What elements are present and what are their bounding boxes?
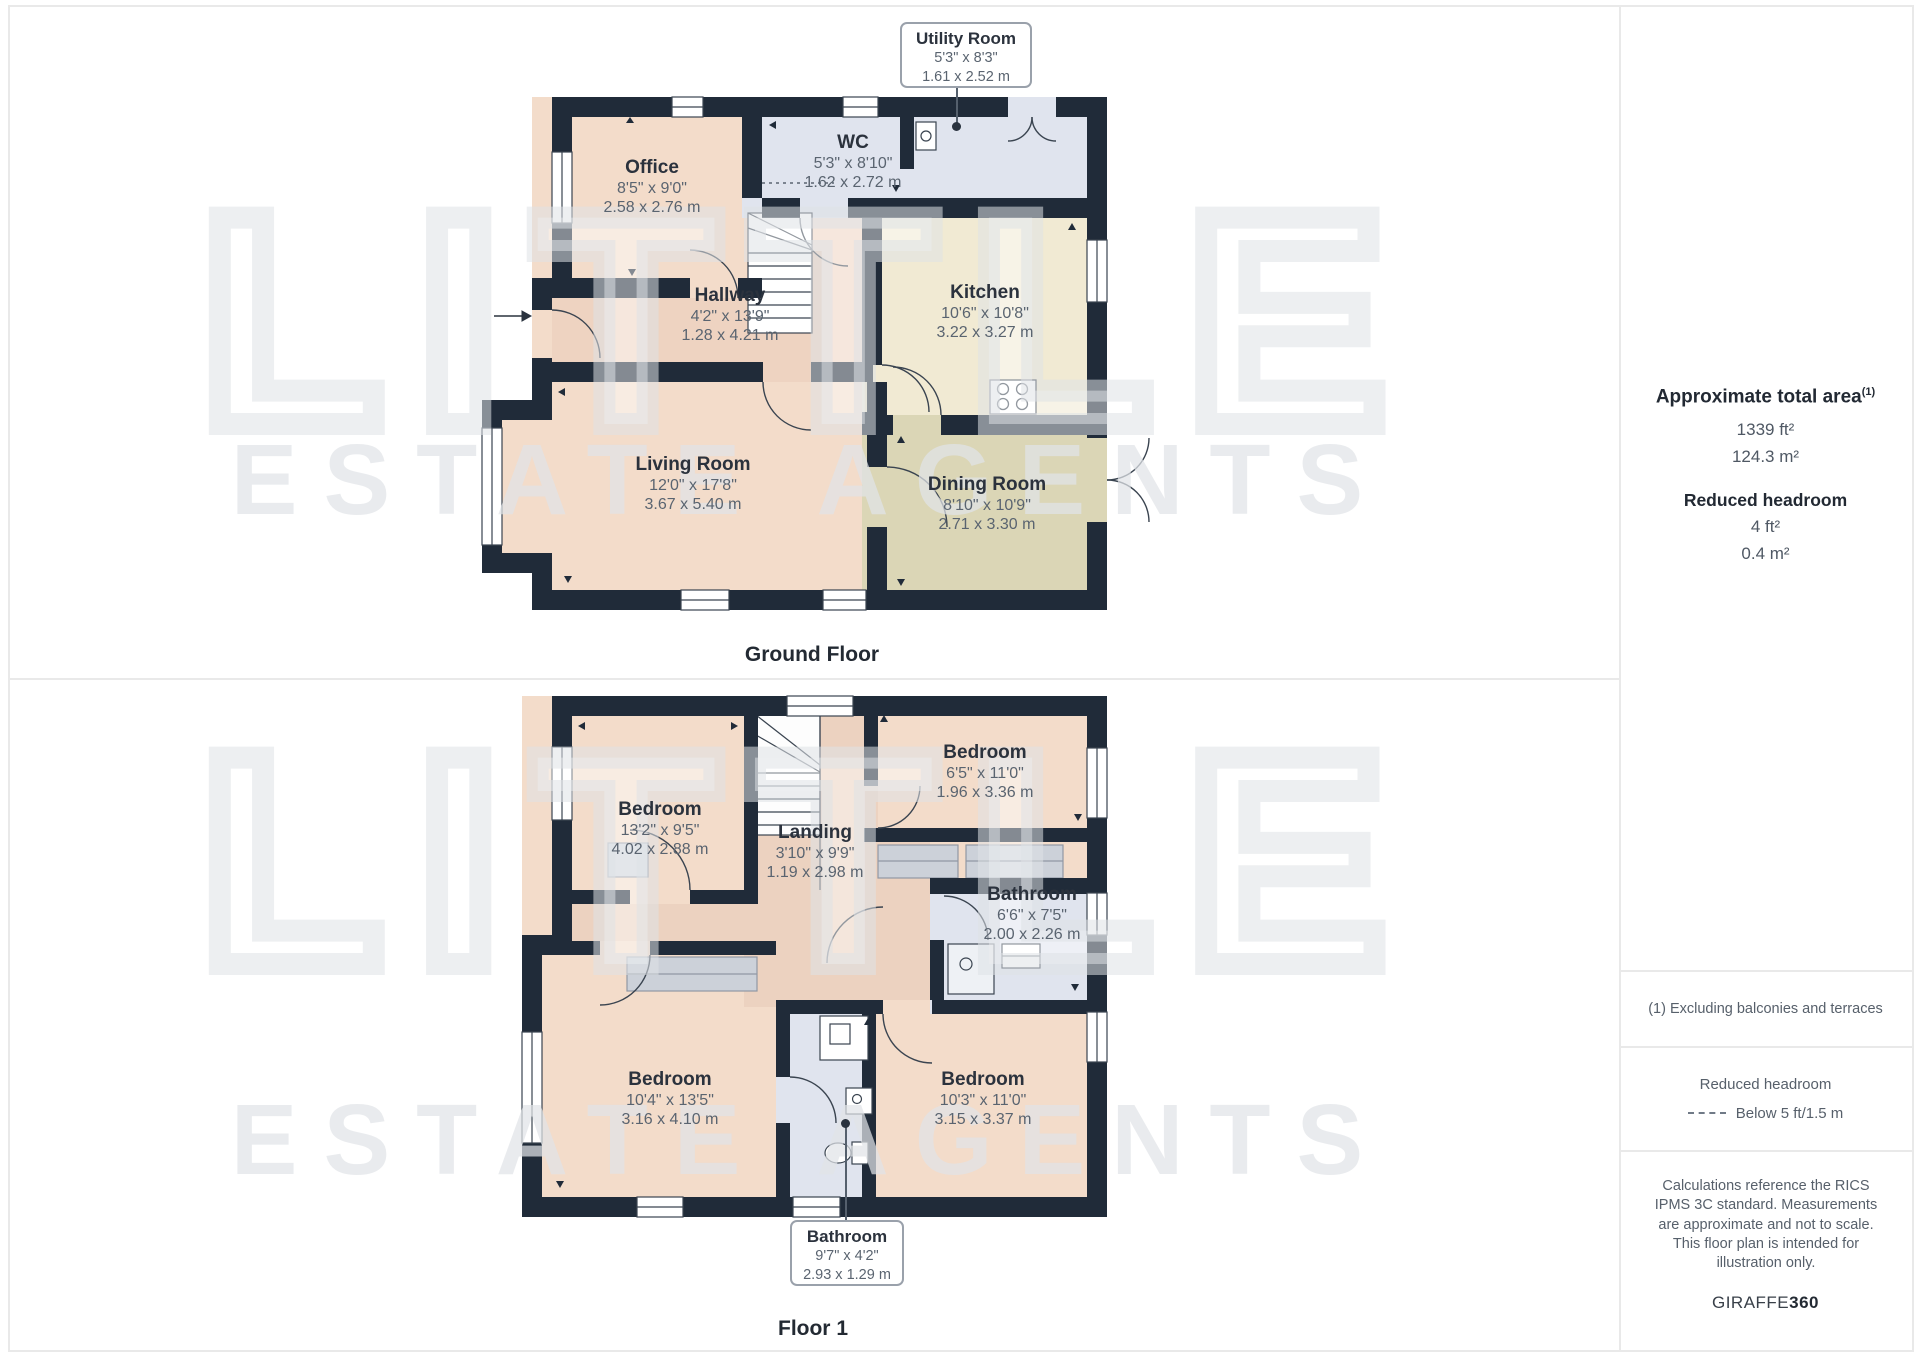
room-label-living-room: Living Room 12'0" x 17'8" 3.67 x 5.40 m xyxy=(635,454,750,514)
room-label-landing: Landing 3'10" x 9'9" 1.19 x 2.98 m xyxy=(767,822,864,882)
total-area-heading: Approximate total area(1) xyxy=(1619,386,1912,408)
legend-heading: Reduced headroom xyxy=(1619,1076,1912,1093)
sidebar-left-border xyxy=(1619,5,1621,1350)
room-label-bedroom-tr: Bedroom 6'5" x 11'0" 1.96 x 3.36 m xyxy=(937,742,1034,802)
bathroom-callout-leader xyxy=(845,1127,847,1220)
room-label-bedroom-tl: Bedroom 13'2" x 9'5" 4.02 x 2.88 m xyxy=(612,799,709,859)
floorplan-page: { "floors": [ { "label": "Ground Floor",… xyxy=(0,0,1918,1357)
entry-arrow-icon xyxy=(494,311,531,321)
room-label-bathroom-right: Bathroom 6'6" x 7'5" 2.00 x 2.26 m xyxy=(984,884,1081,944)
room-label-kitchen: Kitchen 10'6" x 10'8" 3.22 x 3.27 m xyxy=(937,282,1034,342)
sidebar-divider-1 xyxy=(1621,970,1912,972)
legend-row: Below 5 ft/1.5 m xyxy=(1619,1105,1912,1122)
floor-1-title: Floor 1 xyxy=(778,1317,848,1341)
sidebar-divider-2 xyxy=(1621,1046,1912,1048)
utility-room-callout: Utility Room 5'3" x 8'3" 1.61 x 2.52 m xyxy=(900,22,1032,88)
bathroom-callout-dot xyxy=(841,1119,850,1128)
reduced-headroom-heading: Reduced headroom xyxy=(1619,490,1912,511)
total-area-ft: 1339 ft² xyxy=(1619,420,1912,440)
floors-divider xyxy=(10,678,1619,680)
footnote-marker: (1) xyxy=(1862,386,1875,398)
floor-1-plan xyxy=(500,690,1140,1230)
sidebar-footnote: (1) Excluding balconies and terraces xyxy=(1619,1001,1912,1017)
room-label-bedroom-bl: Bedroom 10'4" x 13'5" 3.16 x 4.10 m xyxy=(622,1069,719,1129)
ground-floor-title: Ground Floor xyxy=(745,643,879,667)
sidebar-divider-3 xyxy=(1621,1150,1912,1152)
bathroom-callout: Bathroom 9'7" x 4'2" 2.93 x 1.29 m xyxy=(790,1220,904,1286)
reduced-headroom-m: 0.4 m² xyxy=(1619,544,1912,564)
room-label-dining-room: Dining Room 8'10" x 10'9" 2.71 x 3.30 m xyxy=(928,474,1046,534)
total-area-m: 124.3 m² xyxy=(1619,447,1912,467)
giraffe360-logo: GIRAFFE360 xyxy=(1619,1293,1912,1313)
room-label-office: Office 8'5" x 9'0" 2.58 x 2.76 m xyxy=(604,157,701,217)
utility-sink-icon xyxy=(916,122,936,150)
room-label-hallway: Hallway 4'2" x 13'9" 1.28 x 4.21 m xyxy=(682,285,779,345)
dashed-line-legend-icon xyxy=(1688,1112,1726,1114)
hob-icon xyxy=(990,380,1036,414)
reduced-headroom-ft: 4 ft² xyxy=(1619,517,1912,537)
room-label-wc: WC 5'3" x 8'10" 1.62 x 2.72 m xyxy=(805,132,902,192)
utility-callout-dot xyxy=(952,122,961,131)
sidebar-disclaimer: Calculations reference the RICS IPMS 3C … xyxy=(1645,1177,1887,1273)
room-label-bedroom-br: Bedroom 10'3" x 11'0" 3.15 x 3.37 m xyxy=(935,1069,1032,1129)
